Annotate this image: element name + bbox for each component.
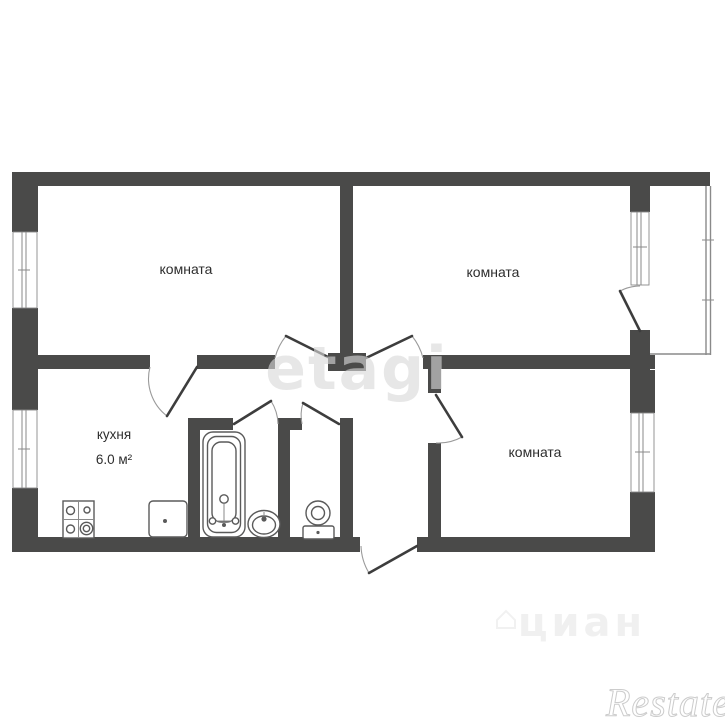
wall-toilet-top xyxy=(278,418,302,430)
wall-between-top-rooms xyxy=(340,186,353,355)
door-icon-bathroom xyxy=(234,401,278,424)
floorplan-svg: комната комната комната кухня 6.0 м² eta… xyxy=(0,0,725,725)
wall-mid-seg3 xyxy=(423,355,655,369)
watermark-cian: циан xyxy=(518,600,646,646)
window-icon-room2 xyxy=(631,212,649,285)
wall-toilet-right xyxy=(340,418,353,537)
bathtub-icon xyxy=(203,432,245,537)
window-icon-room3 xyxy=(631,413,654,492)
watermark-etagi: etagi xyxy=(265,334,448,404)
wall-mid-seg1 xyxy=(38,355,150,369)
wall-bottom-seg2 xyxy=(417,537,655,552)
wall-left-seg1 xyxy=(12,172,38,232)
balcony-outline xyxy=(650,186,714,355)
wall-right-bottom-seg2 xyxy=(630,492,655,552)
wall-top xyxy=(12,172,710,186)
stove-icon xyxy=(63,501,94,538)
wall-room3-left-seg2 xyxy=(428,443,441,537)
window-icon-kitchen xyxy=(13,410,37,488)
toilet-icon xyxy=(303,501,334,539)
window-icon-room1 xyxy=(13,232,37,308)
wall-bath-toilet-divider xyxy=(278,418,290,537)
wall-bathroom-left xyxy=(188,419,200,537)
wall-right-top-seg1 xyxy=(630,186,650,212)
washbasin-icon xyxy=(248,511,280,538)
room1-label: комната xyxy=(160,261,213,277)
floorplan-page: комната комната комната кухня 6.0 м² eta… xyxy=(0,0,725,725)
door-icon-kitchen xyxy=(149,367,197,416)
room2-label: комната xyxy=(467,264,520,280)
wall-left-seg2 xyxy=(12,308,38,410)
door-icon-balcony xyxy=(620,286,640,331)
kitchen-sink-icon xyxy=(149,501,187,537)
watermark-restate: Restate xyxy=(605,680,725,725)
room3-label: комната xyxy=(509,444,562,460)
kitchen-area-label: 6.0 м² xyxy=(96,452,133,467)
wall-bathroom-top xyxy=(188,418,233,430)
wall-mid-seg2 xyxy=(197,355,275,369)
door-icon-toilet xyxy=(301,403,339,424)
kitchen-label: кухня xyxy=(97,427,131,442)
door-icon-entrance xyxy=(361,546,417,573)
wall-right-bottom-seg1 xyxy=(630,370,655,413)
house-icon xyxy=(497,611,515,628)
